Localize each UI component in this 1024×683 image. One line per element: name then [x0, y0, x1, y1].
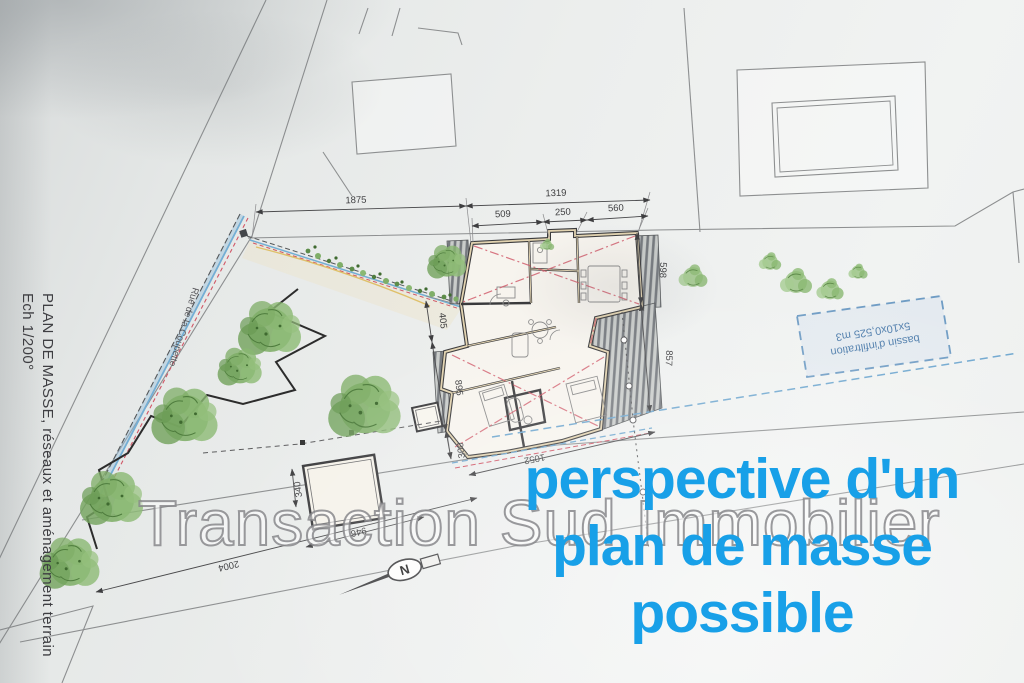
top-building-outline	[352, 74, 456, 154]
plan-side-label: PLAN DE MASSE, réseaux et aménagement te…	[18, 293, 57, 657]
dim-1319: 1319	[545, 188, 567, 200]
dim-1875: 1875	[345, 195, 367, 207]
dim-250: 250	[555, 207, 571, 219]
spa-square	[412, 403, 442, 432]
dim-598: 598	[657, 262, 669, 278]
infiltration-basin: bassin d'infiltration 5x10x0,525 m3	[797, 296, 951, 377]
caption-line-3: possible	[452, 580, 1024, 647]
plan-scale: Ech 1/200°	[18, 293, 38, 657]
garden-path-dashed	[203, 421, 441, 453]
dim-2004: 2004	[217, 558, 240, 573]
dim-405: 405	[436, 312, 449, 329]
dim-895: 895	[452, 379, 465, 396]
caption-overlay: perspective d'un plan de masse possible	[452, 446, 1024, 647]
neighbor-pool-building	[737, 62, 928, 196]
plan-photo: bassin d'infiltration 5x10x0,525 m3	[0, 0, 1024, 683]
caption-line-2: plan de masse	[452, 513, 1024, 580]
caption-line-1: perspective d'un	[452, 446, 1024, 513]
dim-509: 509	[495, 209, 511, 221]
dim-857: 857	[663, 350, 675, 366]
dim-560: 560	[608, 203, 624, 215]
plan-title: PLAN DE MASSE, réseaux et aménagement te…	[38, 293, 58, 657]
